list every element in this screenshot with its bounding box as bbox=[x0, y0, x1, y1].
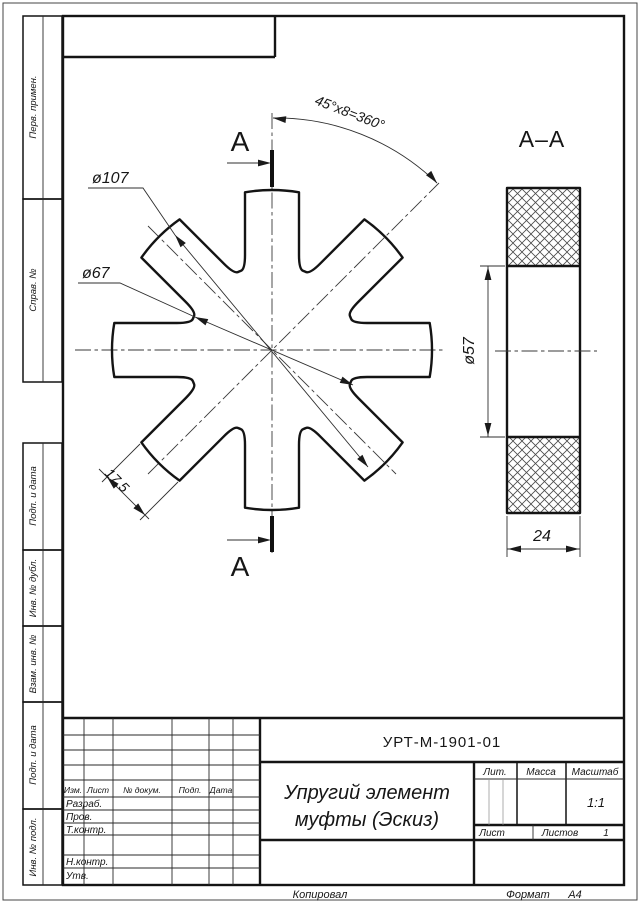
drawing-sheet: Перв. примен. Справ. № Подп. и дата Инв.… bbox=[0, 0, 640, 904]
section-letter-top: А bbox=[231, 126, 250, 157]
hatch-top bbox=[508, 189, 579, 265]
footer: Копировал Формат А4 bbox=[293, 889, 582, 901]
dim-24-text: 24 bbox=[532, 528, 551, 545]
section-mark-bottom: А bbox=[227, 516, 272, 582]
label-massa: Масса bbox=[526, 767, 556, 778]
row-tkontr: Т.контр. bbox=[66, 825, 106, 836]
dim-d107: ø107 bbox=[88, 170, 371, 469]
section-mark-top: А bbox=[227, 126, 272, 187]
col-data: Дата bbox=[209, 785, 233, 795]
hatch-bottom bbox=[508, 438, 579, 512]
row-prov: Пров. bbox=[66, 812, 92, 823]
section-view-label: А–А bbox=[519, 126, 565, 152]
title-block: УРТ-М-1901-01 Упругий элемент муфты (Эск… bbox=[63, 718, 624, 885]
row-utv: Утв. bbox=[65, 871, 89, 882]
dim-d107-text: ø107 bbox=[92, 170, 130, 187]
copied-label: Копировал bbox=[293, 889, 348, 901]
format-value: А4 bbox=[567, 889, 581, 901]
format-label: Формат bbox=[506, 889, 550, 901]
col-izm: Изм. bbox=[64, 785, 82, 795]
margin-label-podp-i-data-1: Подп. и дата bbox=[28, 466, 39, 525]
margin-label-vzam-inv: Взам. инв. № bbox=[28, 635, 39, 694]
label-list2: Лист bbox=[478, 828, 505, 839]
row-razrab: Разраб. bbox=[66, 798, 102, 810]
dim-24: 24 bbox=[507, 516, 580, 557]
dim-d57: ø57 bbox=[461, 266, 505, 437]
scale-value: 1:1 bbox=[587, 795, 605, 810]
top-designation-box bbox=[63, 16, 275, 57]
margin-label-perv-primen: Перв. примен. bbox=[28, 75, 39, 138]
margin-label-inv-dubl: Инв. № дубл. bbox=[28, 559, 39, 617]
centerline-diagonal-ne bbox=[148, 183, 439, 474]
listov-value: 1 bbox=[603, 828, 609, 839]
dim-d57-text: ø57 bbox=[461, 336, 478, 365]
dim-d67-text: ø67 bbox=[82, 265, 111, 282]
label-masshtab: Масштаб bbox=[572, 766, 619, 778]
section-view: А–А ø57 24 bbox=[461, 126, 597, 557]
part-name-line2: муфты (Эскиз) bbox=[295, 809, 439, 831]
col-list: Лист bbox=[86, 785, 109, 795]
col-podp: Подп. bbox=[179, 785, 202, 795]
dim-tooth-width: 17,5 bbox=[99, 444, 178, 520]
dim-angle: 45°х8=360° bbox=[273, 92, 440, 185]
margin-label-sprav: Справ. № bbox=[28, 268, 39, 311]
dim-tooth-text: 17,5 bbox=[102, 465, 133, 496]
row-nkontr: Н.контр. bbox=[66, 857, 108, 868]
engineering-drawing-canvas: Перв. примен. Справ. № Подп. и дата Инв.… bbox=[0, 0, 640, 904]
part-name-line1: Упругий элемент bbox=[283, 782, 450, 804]
dim-d67: ø67 bbox=[78, 265, 354, 388]
col-doc: № докум. bbox=[123, 785, 161, 795]
label-listov: Листов bbox=[541, 828, 578, 839]
dim-angle-text: 45°х8=360° bbox=[313, 92, 387, 133]
margin-label-podp-i-data-2: Подп. и дата bbox=[28, 725, 39, 784]
label-lit: Лит. bbox=[482, 767, 506, 778]
margin-label-inv-podl: Инв. № подл. bbox=[28, 818, 39, 877]
designation: УРТ-М-1901-01 bbox=[383, 734, 502, 751]
section-letter-bottom: А bbox=[231, 551, 250, 582]
left-margin-boxes: Перв. примен. Справ. № Подп. и дата Инв.… bbox=[23, 16, 62, 885]
main-view: ø107 ø67 17,5 45°х8=360° А bbox=[75, 92, 445, 582]
